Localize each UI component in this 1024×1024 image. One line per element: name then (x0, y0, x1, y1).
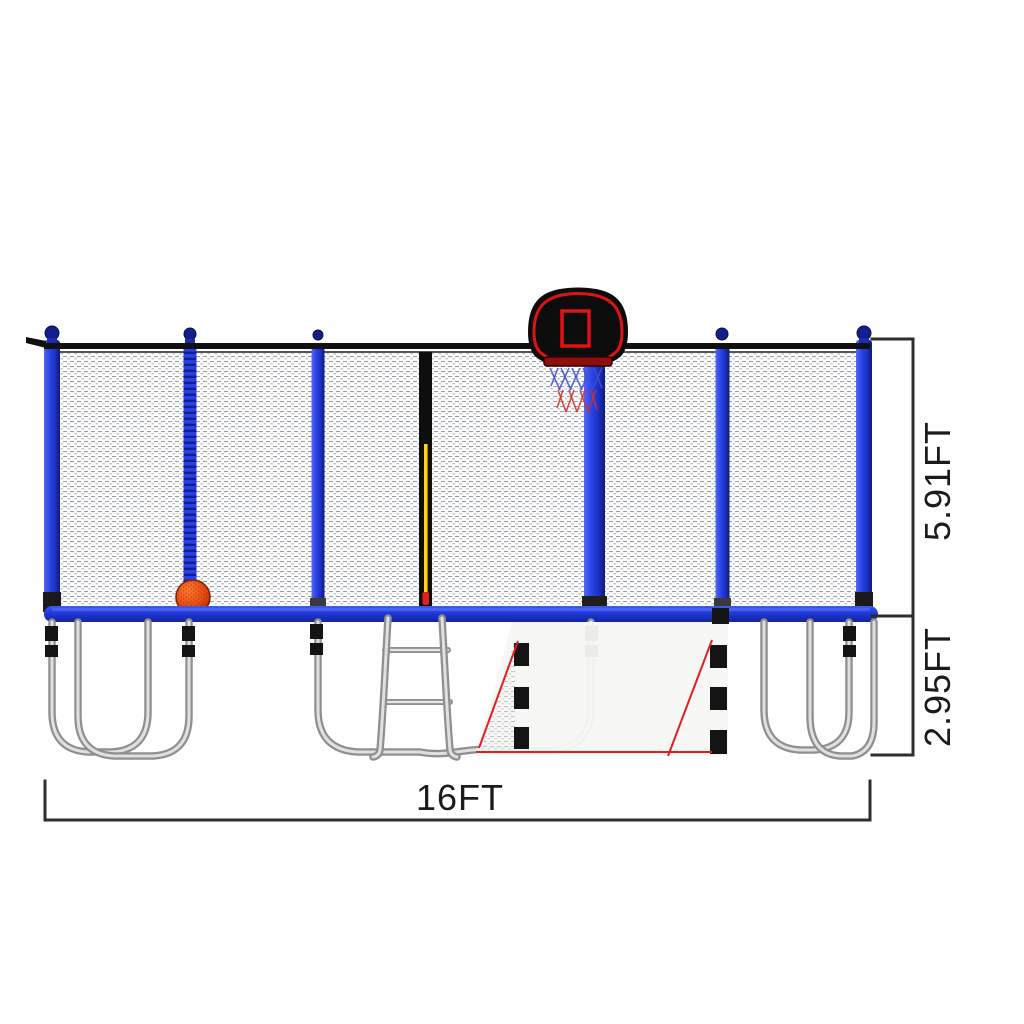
zipper-door (419, 352, 432, 610)
net-height-dimension-label: 5.91FT (917, 421, 958, 541)
top-rail (26, 337, 870, 349)
corner-pole (856, 340, 872, 610)
foam-pole (184, 348, 197, 608)
ladder (373, 618, 457, 757)
width-dimension-label: 16FT (416, 777, 504, 818)
foam-pole (716, 348, 730, 608)
lower-safety-skirt (476, 622, 728, 756)
product-image-canvas: 16FT 5.91FT 2.95FT (0, 0, 1024, 1024)
trampoline-legs-right (712, 608, 874, 756)
foam-pole (312, 348, 325, 608)
hoop-rim (544, 357, 612, 366)
corner-pole (44, 340, 60, 610)
frame-pad (44, 606, 878, 622)
height-dimension-line (872, 339, 913, 755)
enclosure-net (58, 351, 858, 611)
frame-height-dimension-label: 2.95FT (917, 627, 958, 747)
trampoline-dimension-diagram: 16FT 5.91FT 2.95FT (0, 0, 1024, 1024)
trampoline-legs-left (45, 622, 195, 756)
